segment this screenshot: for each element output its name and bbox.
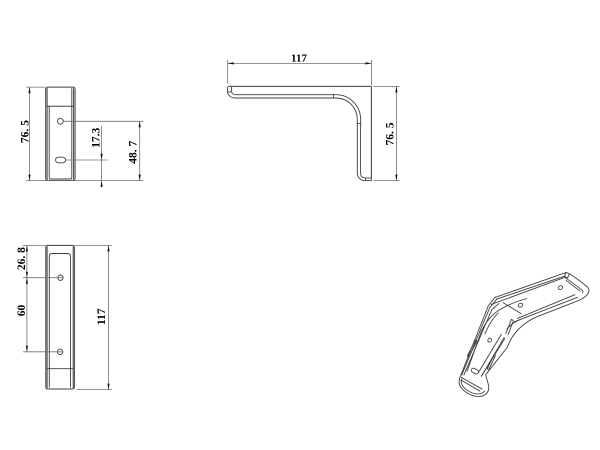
svg-text:117: 117 bbox=[291, 53, 307, 65]
svg-text:48. 7: 48. 7 bbox=[127, 140, 139, 163]
svg-text:60: 60 bbox=[16, 305, 28, 317]
svg-text:76. 5: 76. 5 bbox=[385, 122, 397, 145]
svg-text:26. 8: 26. 8 bbox=[16, 247, 28, 270]
svg-text:117: 117 bbox=[96, 308, 108, 325]
svg-text:17.3: 17.3 bbox=[90, 127, 102, 147]
svg-text:76. 5: 76. 5 bbox=[20, 120, 32, 143]
